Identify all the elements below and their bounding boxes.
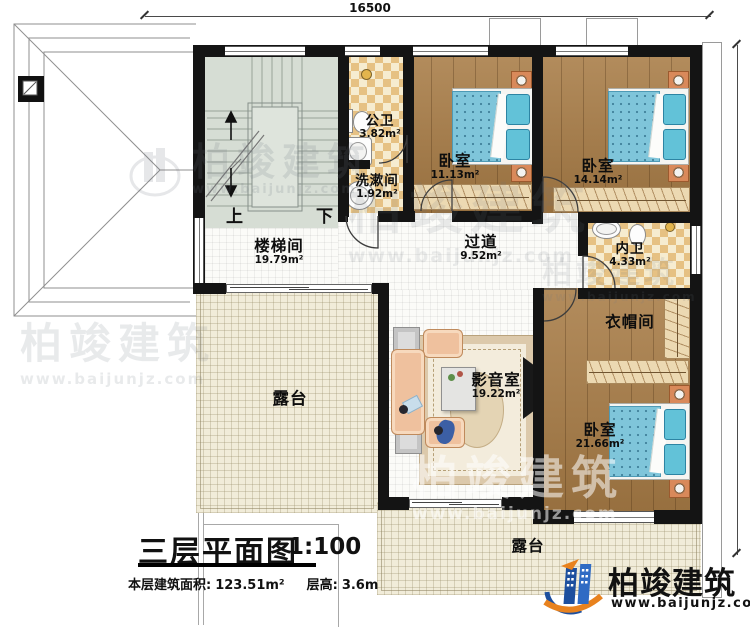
room-area: 1.92m² xyxy=(346,189,408,201)
brand-url: www.baijunjz.com xyxy=(611,596,750,611)
room-name: 公卫 xyxy=(352,114,408,129)
stair-up-arrow xyxy=(226,112,236,140)
room-label-media-room: 影音室 19.22m² xyxy=(456,372,536,401)
room-label-ensuite: 内卫 4.33m² xyxy=(600,242,660,269)
room-name: 内卫 xyxy=(600,242,660,257)
stair-up-label: 上 xyxy=(226,202,243,227)
room-name: 衣帽间 xyxy=(592,314,668,331)
brand-logo-icon xyxy=(541,554,605,620)
drawing-scale: 1:100 xyxy=(288,534,361,560)
door-arc xyxy=(421,180,452,211)
room-label-washroom: 洗漱间 1.92m² xyxy=(346,174,408,201)
floor-info: 本层建筑面积:123.51m²层高:3.6m xyxy=(128,574,382,593)
room-area: 19.79m² xyxy=(236,255,322,267)
stair-landing xyxy=(252,107,298,207)
room-label-stairwell: 楼梯间 19.79m² xyxy=(236,238,322,267)
room-name: 露台 xyxy=(496,538,560,555)
room-area: 14.14m² xyxy=(566,175,630,187)
room-label-cloakroom: 衣帽间 xyxy=(592,314,668,331)
room-area: 21.66m² xyxy=(566,439,634,451)
door-arc xyxy=(346,216,378,248)
room-label-terrace-bottom: 露台 xyxy=(496,538,560,555)
room-name: 过道 xyxy=(444,234,518,251)
floor-height-label: 层高: xyxy=(307,578,338,593)
room-label-public-bath: 公卫 3.82m² xyxy=(352,114,408,141)
room-area: 11.13m² xyxy=(423,170,487,182)
room-area: 3.82m² xyxy=(352,129,408,141)
room-name: 卧室 xyxy=(566,422,634,439)
room-area: 9.52m² xyxy=(444,251,518,263)
door-arc xyxy=(544,289,576,321)
room-label-bedroom-top: 卧室 11.13m² xyxy=(423,153,487,182)
floor-area-value: 123.51m² xyxy=(215,578,284,593)
stair-down-label: 下 xyxy=(316,202,333,227)
room-name: 楼梯间 xyxy=(236,238,322,255)
room-name: 洗漱间 xyxy=(346,174,408,189)
room-name: 卧室 xyxy=(423,153,487,170)
room-label-terrace-left: 露台 xyxy=(256,390,324,408)
room-name: 卧室 xyxy=(566,158,630,175)
room-area: 4.33m² xyxy=(600,257,660,269)
room-label-bedroom-bottom: 卧室 21.66m² xyxy=(566,422,634,451)
room-label-corridor: 过道 9.52m² xyxy=(444,234,518,263)
room-name: 露台 xyxy=(256,390,324,408)
title-underline xyxy=(138,563,316,567)
floor-height-value: 3.6m xyxy=(342,578,379,593)
room-name: 影音室 xyxy=(456,372,536,389)
room-area: 19.22m² xyxy=(456,389,536,401)
room-label-bedroom-right: 卧室 14.14m² xyxy=(566,158,630,187)
floor-plan-canvas: 16500 13400 xyxy=(0,0,750,628)
floor-area-label: 本层建筑面积: xyxy=(128,578,211,593)
